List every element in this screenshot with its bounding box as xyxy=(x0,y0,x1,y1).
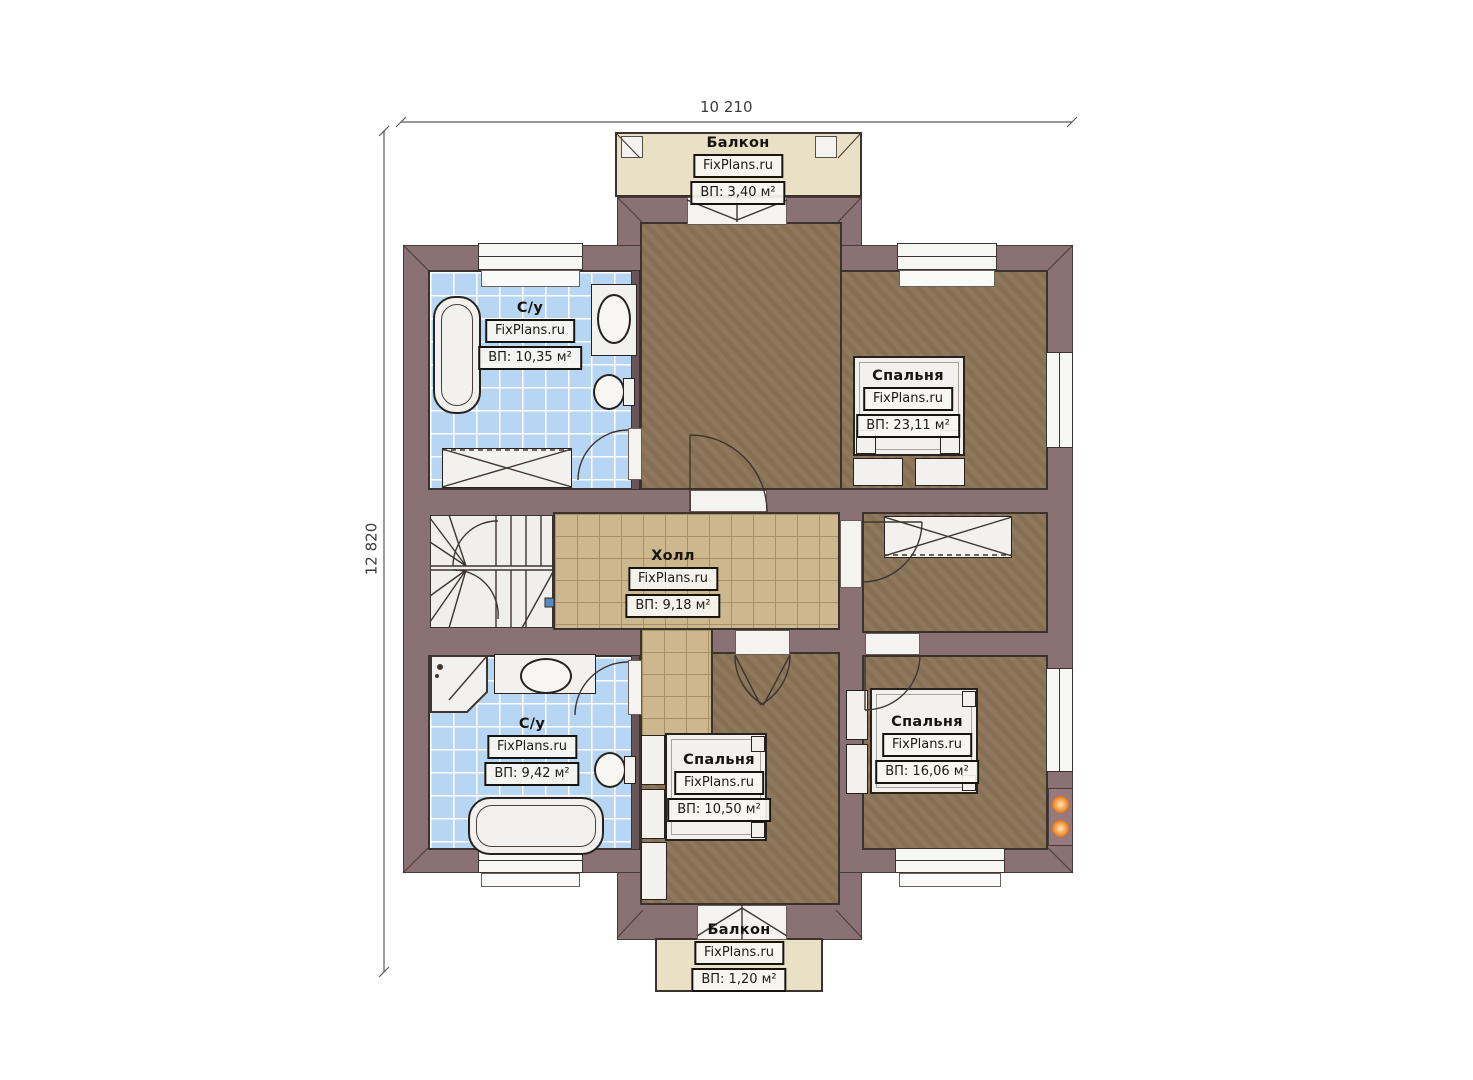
staircase-area xyxy=(430,515,553,628)
room-name: Спальня xyxy=(683,752,755,768)
label-bathroom-top: С/у FixPlans.ru ВП: 10,35 м² xyxy=(478,300,582,370)
window-right-upper xyxy=(1046,352,1073,448)
toilet-bowl-bottom xyxy=(594,752,626,788)
pillow-center-bottom xyxy=(751,822,765,838)
toilet-tank-bottom xyxy=(624,756,636,784)
window-sill-top-right xyxy=(899,270,995,287)
brand-badge: FixPlans.ru xyxy=(863,387,953,411)
label-bedroom-main: Спальня FixPlans.ru ВП: 23,11 м² xyxy=(856,368,960,438)
label-balcony-bottom: Балкон FixPlans.ru ВП: 1,20 м² xyxy=(691,922,786,992)
brand-badge: FixPlans.ru xyxy=(485,319,575,343)
room-area: ВП: 1,20 м² xyxy=(691,968,786,992)
bedroom-main-door-opening xyxy=(690,490,767,512)
room-area: ВП: 10,50 м² xyxy=(667,798,771,822)
window-sill-top-left xyxy=(481,270,580,287)
window-top-left xyxy=(478,243,583,270)
balcony-top-pier-right xyxy=(815,136,837,158)
window-sill-bottom-left xyxy=(481,873,580,887)
dresser-center xyxy=(641,842,667,900)
wardrobe-bathroom-top xyxy=(442,448,572,488)
bedroom-right-door-opening xyxy=(865,633,920,655)
label-bedroom-right: Спальня FixPlans.ru ВП: 16,06 м² xyxy=(875,714,979,784)
nightstand-center-bottom xyxy=(641,789,665,839)
room-name: Холл xyxy=(651,548,695,564)
nightstand-main-right xyxy=(915,458,965,486)
toilet-tank-top xyxy=(623,378,635,406)
bedroom-main-floor-column xyxy=(640,222,842,490)
vent-dot-upper xyxy=(1052,796,1069,813)
brand-badge: FixPlans.ru xyxy=(882,733,972,757)
room-area: ВП: 23,11 м² xyxy=(856,414,960,438)
window-right-lower xyxy=(1046,668,1073,772)
bedroom-center-door-opening xyxy=(735,630,790,655)
window-sill-bottom-right xyxy=(899,873,1001,887)
room-name: Спальня xyxy=(872,368,944,384)
bathroom-top-door-opening xyxy=(628,428,642,480)
nightstand-main-left xyxy=(853,458,903,486)
brand-badge: FixPlans.ru xyxy=(693,154,783,178)
room-name: Спальня xyxy=(891,714,963,730)
window-bottom-right xyxy=(895,848,1005,873)
brand-badge: FixPlans.ru xyxy=(628,567,718,591)
room-name: Балкон xyxy=(706,135,769,151)
room-area: ВП: 10,35 м² xyxy=(478,346,582,370)
wardrobe-dressing xyxy=(884,516,1012,558)
window-top-right xyxy=(897,243,997,270)
pillow-center-top xyxy=(751,736,765,752)
room-name: С/у xyxy=(519,716,545,732)
dressing-door-opening xyxy=(840,520,862,588)
floor-plan: 10 210 12 820 xyxy=(0,0,1473,1080)
nightstand-right-top xyxy=(846,690,868,740)
label-hall: Холл FixPlans.ru ВП: 9,18 м² xyxy=(625,548,720,618)
room-name: С/у xyxy=(517,300,543,316)
bathtub-bottom xyxy=(468,797,604,855)
vent-dot-lower xyxy=(1052,820,1069,837)
label-balcony-top: Балкон FixPlans.ru ВП: 3,40 м² xyxy=(690,135,785,205)
bathroom-bottom-door-opening xyxy=(628,660,642,715)
pillow-right-top xyxy=(962,691,976,707)
toilet-bowl-top xyxy=(593,374,625,410)
dimension-width-label: 10 210 xyxy=(700,98,753,116)
room-area: ВП: 3,40 м² xyxy=(690,181,785,205)
brand-badge: FixPlans.ru xyxy=(674,771,764,795)
room-area: ВП: 9,42 м² xyxy=(484,762,579,786)
room-name: Балкон xyxy=(707,922,770,938)
bathtub-top xyxy=(433,296,481,414)
sink-bottom xyxy=(520,658,572,694)
label-bathroom-bottom: С/у FixPlans.ru ВП: 9,42 м² xyxy=(484,716,579,786)
room-area: ВП: 16,06 м² xyxy=(875,760,979,784)
nightstand-right-bottom xyxy=(846,744,868,794)
nightstand-center-top xyxy=(641,735,665,785)
sink-top xyxy=(597,294,631,344)
balcony-top-pier-left xyxy=(621,136,643,158)
brand-badge: FixPlans.ru xyxy=(694,941,784,965)
brand-badge: FixPlans.ru xyxy=(487,735,577,759)
room-area: ВП: 9,18 м² xyxy=(625,594,720,618)
dimension-height-label: 12 820 xyxy=(362,523,380,576)
label-bedroom-center: Спальня FixPlans.ru ВП: 10,50 м² xyxy=(667,752,771,822)
